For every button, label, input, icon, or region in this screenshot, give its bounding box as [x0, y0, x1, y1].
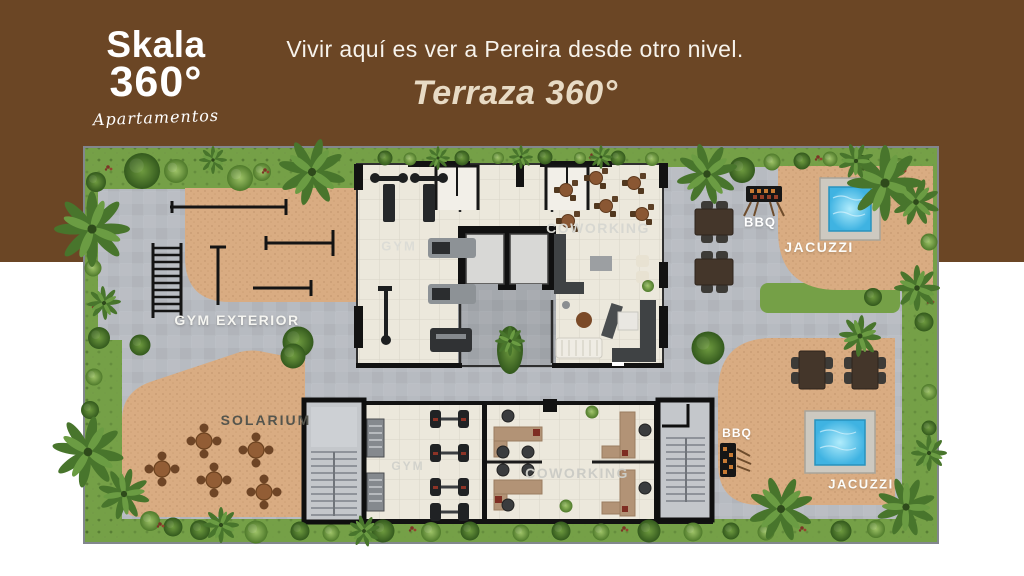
poster: Skala 360° Apartamentos Vivir aquí es ve… [0, 0, 1024, 576]
stairs-left [304, 400, 364, 522]
gym-exterior-area [185, 188, 356, 302]
building-bottom [304, 399, 713, 524]
floorplan-illustration [0, 0, 1024, 576]
stairs-right [658, 400, 712, 520]
jacuzzi-bottom [805, 411, 875, 473]
